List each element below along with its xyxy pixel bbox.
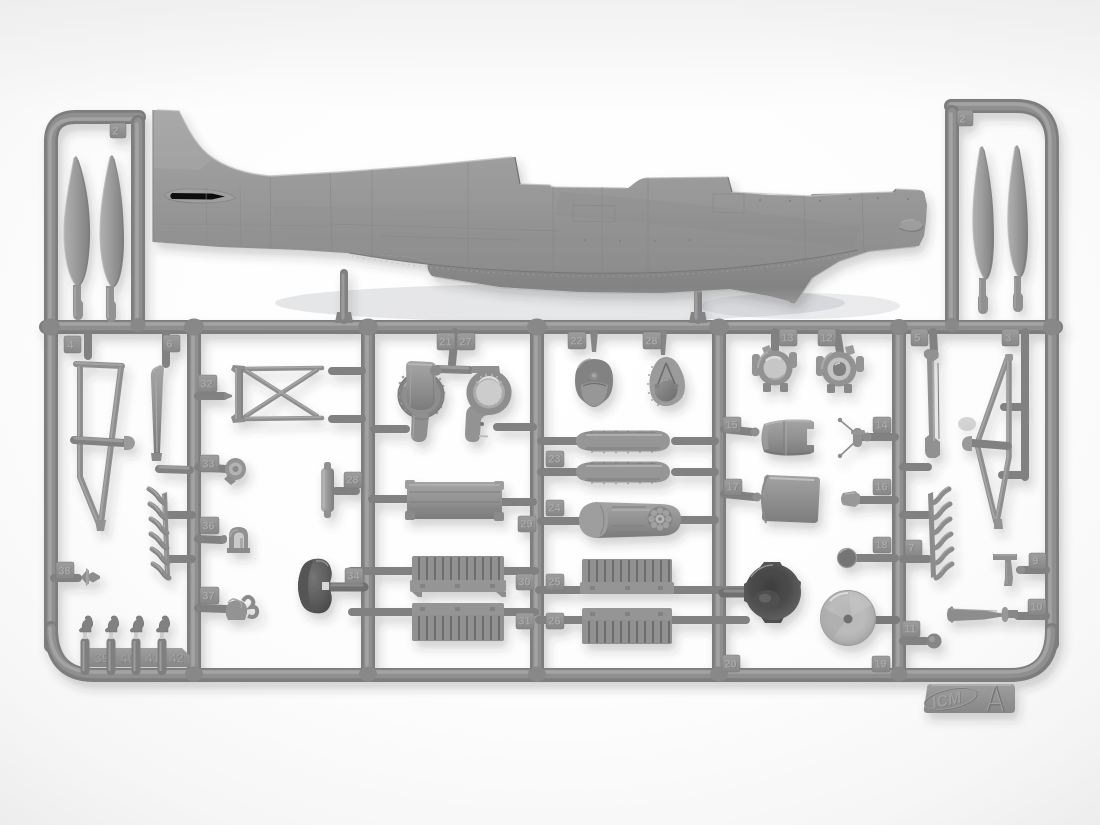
svg-text:17: 17 xyxy=(726,481,738,493)
svg-text:38: 38 xyxy=(58,565,70,577)
svg-text:28: 28 xyxy=(645,335,657,347)
svg-text:22: 22 xyxy=(570,335,582,347)
svg-text:21: 21 xyxy=(439,336,451,348)
svg-text:31: 31 xyxy=(518,615,530,627)
svg-text:6: 6 xyxy=(166,338,172,350)
svg-text:2: 2 xyxy=(112,125,118,137)
svg-text:11: 11 xyxy=(904,623,916,635)
svg-text:42: 42 xyxy=(170,651,184,666)
svg-text:24: 24 xyxy=(548,502,561,514)
svg-text:3: 3 xyxy=(1005,332,1011,344)
svg-text:16: 16 xyxy=(875,481,887,493)
svg-text:14: 14 xyxy=(875,419,888,431)
svg-text:29: 29 xyxy=(520,518,532,530)
svg-text:25: 25 xyxy=(548,576,560,588)
svg-text:2: 2 xyxy=(959,113,965,125)
svg-text:23: 23 xyxy=(548,453,560,465)
svg-text:5: 5 xyxy=(914,332,920,344)
svg-text:19: 19 xyxy=(874,658,886,670)
svg-text:28: 28 xyxy=(346,474,358,486)
svg-text:15: 15 xyxy=(725,419,737,431)
svg-text:9: 9 xyxy=(1032,555,1038,567)
svg-text:27: 27 xyxy=(459,336,471,348)
svg-text:13: 13 xyxy=(781,332,793,344)
svg-text:36: 36 xyxy=(202,520,214,532)
svg-text:32: 32 xyxy=(200,378,212,390)
svg-text:33: 33 xyxy=(202,458,214,470)
svg-text:4: 4 xyxy=(67,339,74,351)
svg-text:30: 30 xyxy=(518,576,530,588)
svg-text:20: 20 xyxy=(724,658,736,670)
svg-text:12: 12 xyxy=(820,332,832,344)
svg-text:10: 10 xyxy=(1030,601,1042,613)
svg-text:7: 7 xyxy=(908,542,914,554)
svg-text:37: 37 xyxy=(202,590,214,602)
svg-text:34: 34 xyxy=(347,570,360,582)
svg-text:26: 26 xyxy=(548,615,560,627)
svg-text:18: 18 xyxy=(875,539,887,551)
